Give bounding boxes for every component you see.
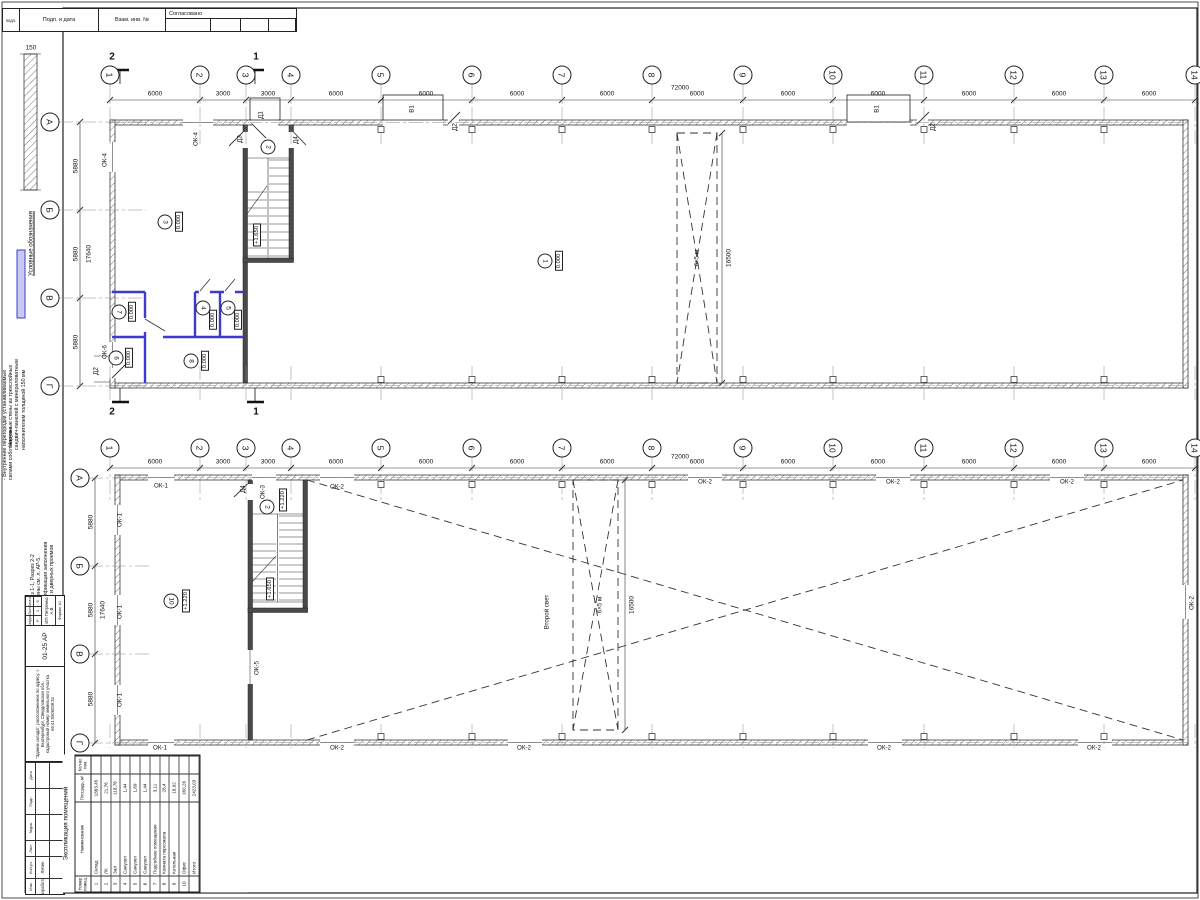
stage-value: Р [34,615,42,625]
room-explication: Экспликация помещений Номер помещ. Наиме… [63,755,248,893]
room-table-row: 10 Офис 160,26 [180,756,190,892]
room-area: 28,4 [160,774,170,802]
revision-headers: Изм.Кол.уч.Лист№док.Подп.Дата [26,762,36,894]
room-name: Офис [180,802,190,876]
header-room-name: Наименование [76,802,92,876]
stamp-cell-vzam: Взам. инв. № [99,9,166,31]
stamp-cell-sign-date: Подп. и дата [20,9,99,31]
room-area: 18,92 [170,774,180,802]
room-table-total-row: Итого 2423,03 [189,756,199,892]
room-name: Зал [111,802,121,876]
room-count [101,756,111,774]
sheets-value: 6 [34,596,42,606]
sheets-label: Листов [26,596,34,606]
room-count [170,756,180,774]
drawing-sheet: подл. Подп. и дата Взам. инв. № Согласов… [0,0,1200,900]
room-table-row: 9 Котельная 18,92 [170,756,180,892]
room-table-body: 1 Склад 1883,45 2 ЛК 21,76 3 Зал 118,76 … [92,756,190,892]
room-area: 21,76 [101,774,111,802]
room-number: 10 [180,876,190,892]
room-table-row: 6 Санузел 1,44 [140,756,150,892]
format-label: Формат А1 [55,596,64,625]
room-number: 9 [170,876,180,892]
total-area: 2423,03 [189,774,199,802]
stamp-agreed-label: Согласовано [166,9,296,19]
top-left-stamp: подл. Подп. и дата Взам. инв. № Согласов… [2,8,297,32]
room-table-headers: Номер помещ. Наименование Площадь, м² Ко… [76,756,92,892]
legend-line: силами собственника [8,290,14,480]
project-name: "Здание склада", расположенное по адресу… [26,666,64,761]
room-area: 3,11 [150,774,160,802]
room-count [140,756,150,774]
room-table: Номер помещ. Наименование Площадь, м² Ко… [75,755,201,893]
room-name: Санузел [140,802,150,876]
room-number: 5 [131,876,141,892]
room-number: 8 [160,876,170,892]
room-area: 160,26 [180,774,190,802]
stage-label: Стадия [26,615,34,625]
room-table-row: 2 ЛК 21,76 [101,756,111,892]
legend-item-partitions: - Внутренние перегородки устанавливаемые… [2,290,16,480]
room-number: 2 [101,876,111,892]
room-table-row: 4 Санузел 1,44 [121,756,131,892]
legend-line: наполнителем толщиной 150 мм [21,190,27,450]
developer-name: Ляпин [36,856,50,878]
room-table-row: 1 Склад 1883,45 [92,756,102,892]
document-code: 01-25 АР [26,625,64,666]
header-room-area: Площадь, м² [76,774,92,802]
room-name: Комната персонала [160,802,170,876]
room-count [160,756,170,774]
stamp-agreed-block: Согласовано [166,9,296,31]
room-count [92,756,102,774]
stage-headers: Стадия Лист Листов [26,596,34,625]
room-area: 1,44 [121,774,131,802]
room-count [111,756,121,774]
stamp-cell-podl: подл. [3,9,20,31]
room-table-row: 3 Зал 118,76 [111,756,121,892]
room-count [180,756,190,774]
room-name: Подсобное помещение [150,802,160,876]
room-name: ЛК [101,802,111,876]
revision-header-cell: Кол.уч. [26,856,36,878]
room-number: 3 [111,876,121,892]
room-number: 1 [92,876,102,892]
header-room-count: Кол-во пом. [76,756,92,774]
revision-row: Разработал Ляпин [36,762,50,894]
revision-header-cell: Дата [26,762,36,788]
sheet-label: Лист [26,606,34,616]
room-table-row: 5 Санузел 1,69 [131,756,141,892]
company-name: ИП Петренко А.В. [42,596,55,625]
revision-header-cell: Изм. [26,878,36,894]
room-area: 1883,45 [92,774,102,802]
room-count [150,756,160,774]
title-block-revisions: Изм.Кол.уч.Лист№док.Подп.Дата Разработал… [26,761,64,894]
room-name: Санузел [121,802,131,876]
stamp-agreed-cells [166,19,296,31]
room-count [121,756,131,774]
title-block: Изм.Кол.уч.Лист№док.Подп.Дата Разработал… [25,595,65,895]
sheet-value: 1 [34,606,42,616]
room-name: Санузел [131,802,141,876]
room-area: 1,69 [131,774,141,802]
revision-header-cell: Подп. [26,788,36,814]
title-block-right: Стадия Лист Листов Р 1 6 ИП Петренко А.В… [26,596,64,625]
room-table-row: 7 Подсобное помещение 3,11 [150,756,160,892]
room-table-title: Экспликация помещений [63,755,75,893]
revision-header-cell: №док. [26,814,36,840]
room-name: Котельная [170,802,180,876]
revision-header-cell: Лист [26,840,36,856]
stage-values: Р 1 6 [34,596,42,625]
total-label: Итого [189,802,199,876]
room-area: 118,76 [111,774,121,802]
room-number: 4 [121,876,131,892]
room-area: 1,44 [140,774,150,802]
room-count [131,756,141,774]
room-table-row: 8 Комната персонала 28,4 [160,756,170,892]
legend-title: Условные обозначения [29,196,40,292]
room-number: 6 [140,876,150,892]
developer-label: Разработал [36,878,50,894]
header-room-number: Номер помещ. [76,876,92,892]
room-name: Склад [92,802,102,876]
room-number: 7 [150,876,160,892]
